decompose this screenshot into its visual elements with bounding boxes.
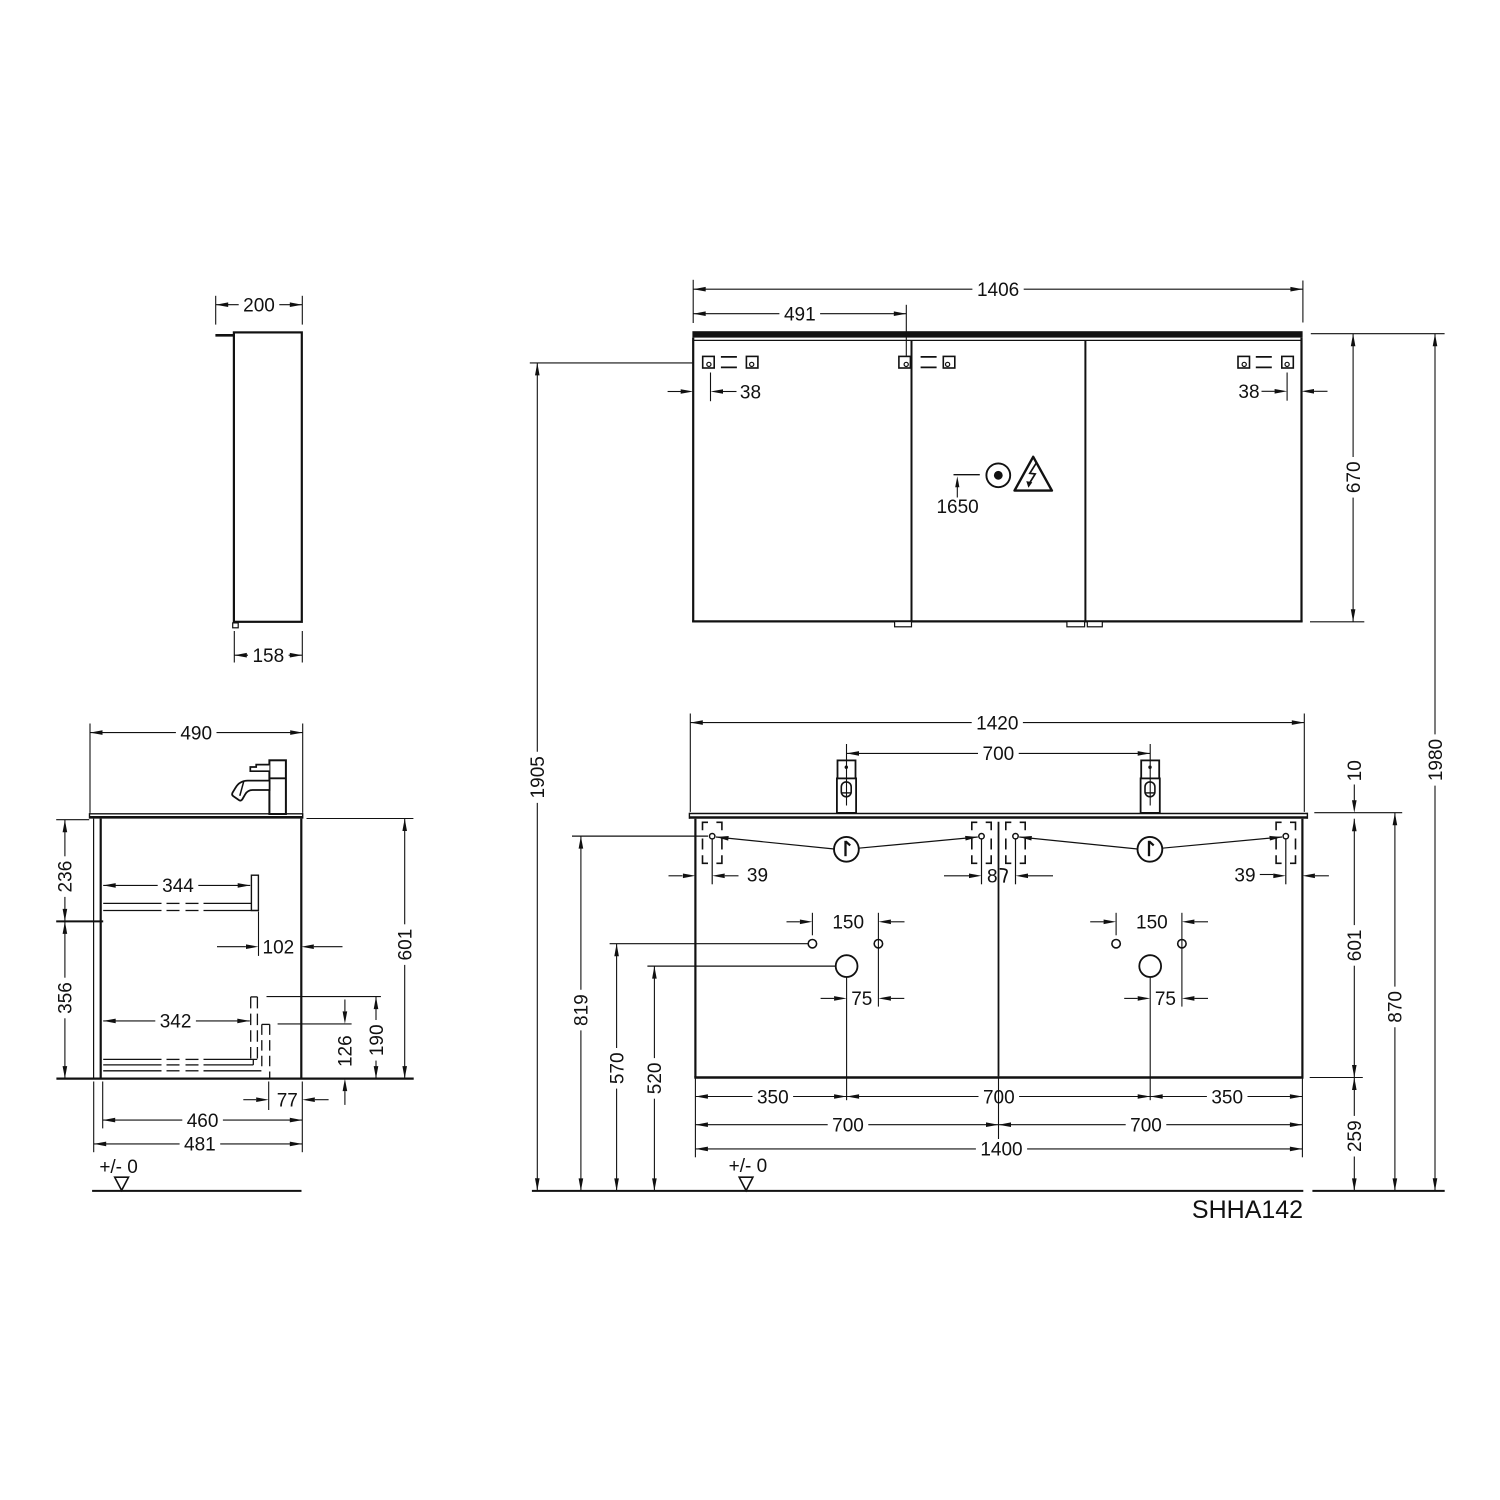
svg-text:259: 259 bbox=[1345, 1120, 1366, 1152]
svg-text:+/- 0: +/- 0 bbox=[729, 1156, 768, 1177]
svg-text:491: 491 bbox=[784, 305, 816, 326]
svg-text:870: 870 bbox=[1386, 991, 1407, 1023]
svg-text:670: 670 bbox=[1344, 461, 1365, 493]
svg-text:350: 350 bbox=[757, 1087, 789, 1108]
svg-text:460: 460 bbox=[187, 1111, 219, 1132]
svg-text:490: 490 bbox=[180, 723, 212, 744]
svg-text:570: 570 bbox=[607, 1052, 628, 1084]
svg-text:700: 700 bbox=[983, 744, 1015, 765]
svg-text:39: 39 bbox=[747, 865, 768, 886]
svg-text:190: 190 bbox=[367, 1024, 388, 1056]
svg-text:75: 75 bbox=[1155, 989, 1176, 1010]
svg-text:SHHA142: SHHA142 bbox=[1192, 1196, 1303, 1224]
svg-text:481: 481 bbox=[184, 1135, 216, 1156]
svg-text:126: 126 bbox=[336, 1035, 357, 1067]
svg-text:1400: 1400 bbox=[980, 1140, 1022, 1161]
svg-text:700: 700 bbox=[832, 1116, 864, 1137]
svg-text:75: 75 bbox=[851, 989, 872, 1010]
svg-text:77: 77 bbox=[277, 1091, 298, 1112]
svg-text:102: 102 bbox=[263, 938, 295, 959]
svg-text:356: 356 bbox=[56, 982, 77, 1014]
svg-text:342: 342 bbox=[160, 1012, 192, 1033]
svg-text:1980: 1980 bbox=[1426, 739, 1447, 781]
svg-text:150: 150 bbox=[1136, 913, 1168, 934]
svg-text:1420: 1420 bbox=[976, 713, 1018, 734]
svg-text:38: 38 bbox=[740, 382, 761, 403]
svg-text:150: 150 bbox=[832, 913, 864, 934]
svg-text:38: 38 bbox=[1238, 382, 1259, 403]
svg-text:601: 601 bbox=[1345, 930, 1366, 962]
svg-text:344: 344 bbox=[162, 876, 194, 897]
svg-text:1905: 1905 bbox=[528, 756, 549, 798]
svg-text:200: 200 bbox=[243, 296, 275, 317]
svg-text:700: 700 bbox=[1130, 1116, 1162, 1137]
svg-text:1650: 1650 bbox=[936, 497, 978, 518]
svg-text:819: 819 bbox=[572, 994, 593, 1026]
svg-text:39: 39 bbox=[1234, 865, 1255, 886]
svg-text:700: 700 bbox=[983, 1087, 1015, 1108]
svg-text:+/- 0: +/- 0 bbox=[99, 1157, 138, 1178]
svg-text:158: 158 bbox=[252, 646, 284, 667]
svg-text:601: 601 bbox=[396, 929, 417, 961]
svg-text:236: 236 bbox=[56, 861, 77, 893]
svg-text:8: 8 bbox=[987, 867, 998, 888]
svg-text:1406: 1406 bbox=[977, 280, 1019, 301]
svg-text:350: 350 bbox=[1211, 1087, 1243, 1108]
svg-text:10: 10 bbox=[1345, 760, 1366, 781]
svg-text:520: 520 bbox=[645, 1063, 666, 1095]
